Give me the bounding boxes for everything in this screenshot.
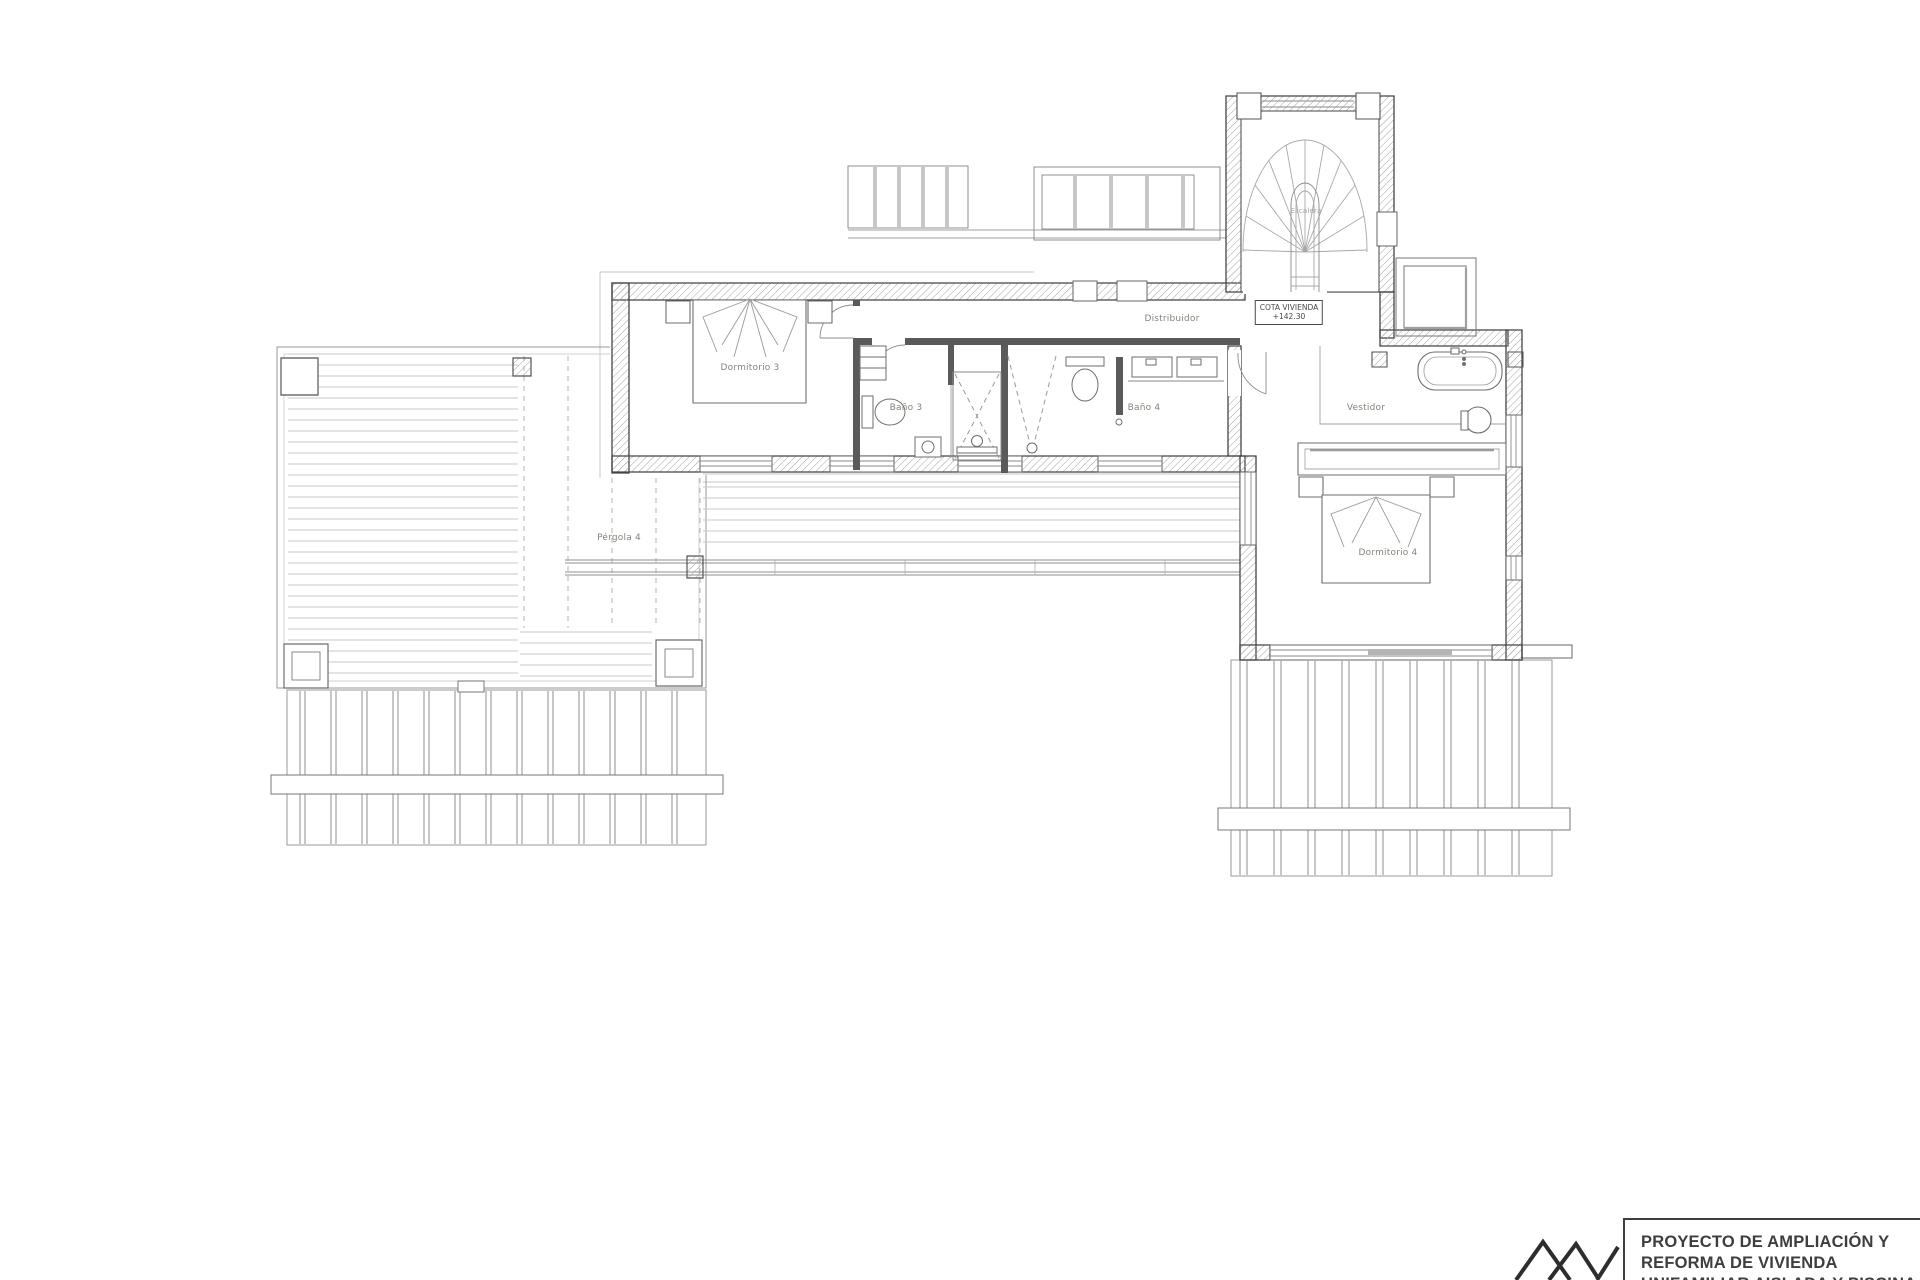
pergola-beam <box>271 775 723 794</box>
pergola-slats-right <box>1240 661 1519 875</box>
pergola-overhead-dashed <box>524 356 568 628</box>
title-line3: UNIFAMILIAR AISLADA Y PISCINA <box>1641 1274 1920 1280</box>
wall-extension <box>1522 645 1572 658</box>
floor-plan-canvas: Dormitorio 3 Baño 3 Baño 4 Distribuidor … <box>0 0 1920 1280</box>
bed-dorm3 <box>666 299 832 403</box>
deck-post <box>281 358 318 395</box>
floor-plan-drawing <box>0 0 1920 1280</box>
balcony-b2-slats <box>874 167 948 227</box>
room-label-pergola4: Pérgola 4 <box>597 533 641 543</box>
toilet4-bowl <box>1072 369 1098 401</box>
toilet4-tank <box>1066 357 1104 366</box>
bathtub <box>1418 352 1502 390</box>
room-label-bano3: Baño 3 <box>890 403 923 413</box>
vestidor-fixtures <box>1320 346 1507 433</box>
pergola-connector <box>458 681 484 692</box>
title-block: PROYECTO DE AMPLIACIÓN Y REFORMA DE VIVI… <box>1623 1218 1920 1280</box>
pergola-beam-right <box>1218 808 1570 830</box>
wardrobe <box>1298 443 1506 475</box>
pergola-bottom-right <box>1218 645 1572 876</box>
shower-drain <box>972 436 983 447</box>
room-label-vestidor: Vestidor <box>1347 403 1385 413</box>
room-label-escalera: Escalera <box>1290 207 1321 215</box>
deck-boards <box>288 354 518 673</box>
title-line2: REFORMA DE VIVIENDA <box>1641 1253 1920 1274</box>
room-label-dormitorio3: Dormitorio 3 <box>721 363 780 373</box>
room-label-dormitorio4: Dormitorio 4 <box>1359 548 1418 558</box>
walkway-boards <box>703 487 1240 542</box>
partitions <box>853 300 1240 473</box>
balcony-b1-slats <box>1074 176 1184 228</box>
deck-boards-lower <box>520 632 652 676</box>
pergola-overhead-dashed2 <box>612 478 700 628</box>
bay-window <box>1396 258 1476 336</box>
wash-basin <box>1465 407 1491 433</box>
bath3-fixtures <box>860 346 1001 460</box>
pergola-bottom-left <box>271 681 723 845</box>
title-line1: PROYECTO DE AMPLIACIÓN Y <box>1641 1232 1920 1253</box>
left-deck <box>277 347 706 688</box>
room-label-bano4: Baño 4 <box>1128 403 1161 413</box>
cota-line2: +142.30 <box>1260 312 1318 321</box>
pergola-slats <box>300 691 677 844</box>
deck-post-hatched <box>513 358 531 376</box>
cota-line1: COTA VIVIENDA <box>1260 303 1318 312</box>
room-label-distribuidor: Distribuidor <box>1144 314 1199 324</box>
beam-post <box>687 556 703 578</box>
deck-post-bl-inner <box>292 652 320 680</box>
architect-logo-icon <box>1508 1238 1628 1280</box>
toilet-tank <box>862 396 873 428</box>
deck-post-br-inner <box>665 649 693 677</box>
walkway-terrace <box>565 487 1240 578</box>
walkin-shower <box>1008 356 1056 448</box>
balcony-structures <box>848 166 1220 240</box>
cota-annotation: COTA VIVIENDA +142.30 <box>1255 300 1323 325</box>
bed-dorm4 <box>1298 443 1506 583</box>
